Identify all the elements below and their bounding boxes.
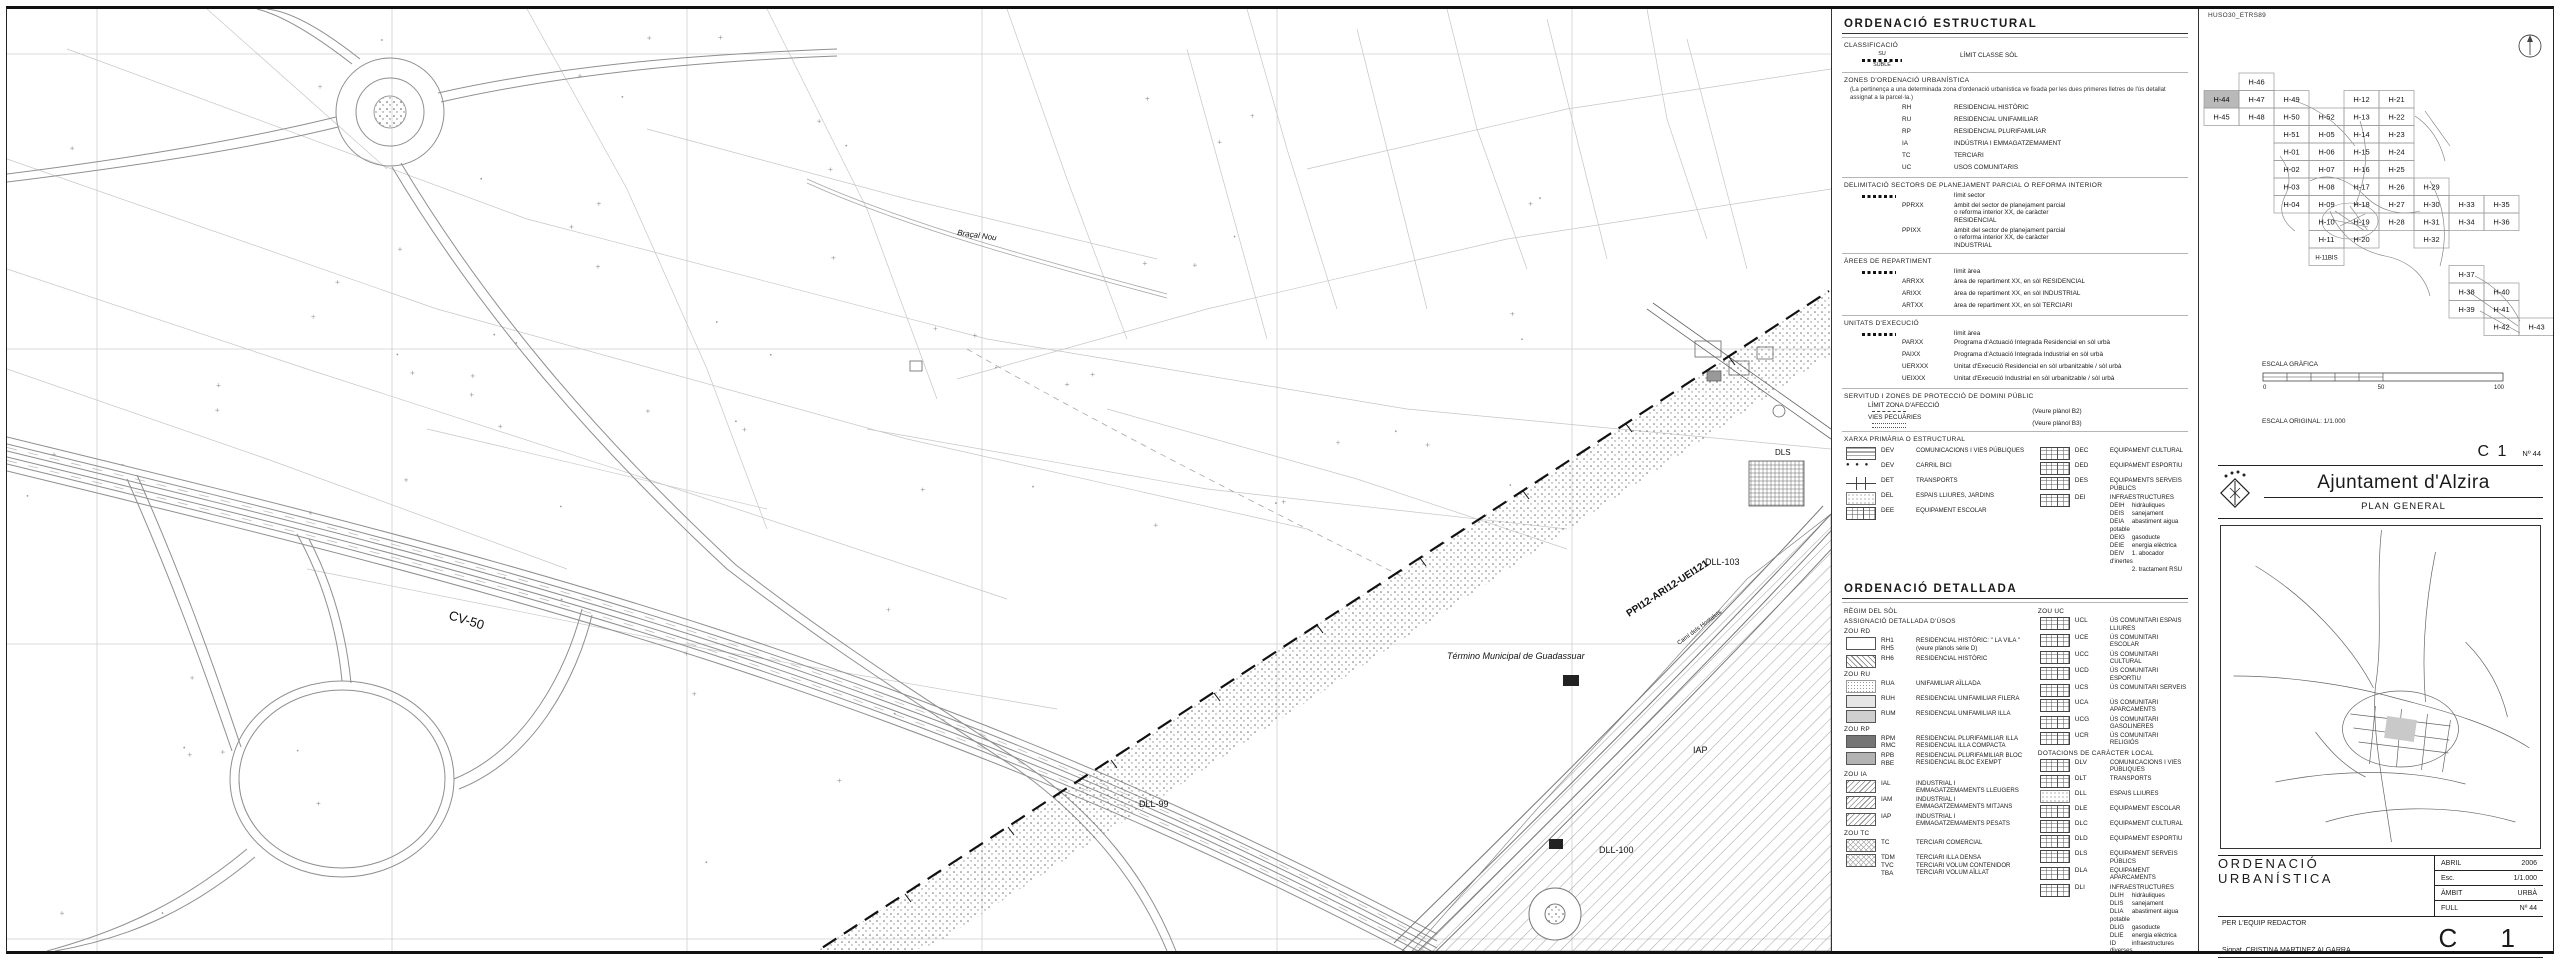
index-cell: H-15 [2344,143,2379,161]
legend-swatch-icon [2040,732,2070,745]
index-cell: H-24 [2379,143,2414,161]
title-block: C 1 Nº 44 Ajuntament d'Alzira PLAN GENER… [2218,441,2543,519]
svg-text:H-25: H-25 [2388,165,2404,174]
legend-content: ORDENACIÓ ESTRUCTURALCLASSIFICACIÓSUSUBL… [1842,15,2188,951]
svg-text:H-20: H-20 [2353,235,2369,244]
legend-item: DEDEQUIPAMENT ESPORTIU [2036,461,2188,475]
svg-text:50: 50 [2378,385,2385,390]
legend-swatch-icon [2040,850,2070,863]
map-label: DLL-100 [1599,845,1634,855]
legend-swatch-icon: ● ● ● [1846,462,1876,475]
svg-text:H-17: H-17 [2353,182,2369,191]
legend-swatch-icon [1846,492,1876,505]
svg-text:H-40: H-40 [2493,287,2509,296]
index-cell: H-12 [2344,91,2379,109]
legend-item: IAMINDUSTRIAL IEMMAGATZEMAMENTS MITJANS [1842,795,2028,811]
legend-item: UERXXXUnitat d'Execució Residencial en s… [1842,362,2188,373]
svg-text:H-32: H-32 [2423,235,2439,244]
signature-label: Signat. CRISTINA MARTINEZ ALGARRA [2222,947,2351,954]
legend-item: LÍMIT ZONA D'AFECCIÓ(Veure plànol B2) [1842,402,2188,412]
svg-text:H-09: H-09 [2318,200,2334,209]
legend-swatch-icon [1862,195,1896,198]
legend-swatch-icon [2040,835,2070,848]
svg-text:H-39: H-39 [2458,305,2474,314]
map-label: DLL-103 [1705,557,1740,567]
index-cell: H-04 [2274,196,2309,214]
map-label: CV-50 [447,608,486,633]
svg-text:H-33: H-33 [2458,200,2474,209]
legend-swatch-icon [1846,447,1876,460]
legend-item: UCRÚS COMUNITARI RELIGIÓS [2036,731,2188,747]
escala-grafica-label: ESCALA GRÀFICA [2262,361,2512,368]
svg-text:H-42: H-42 [2493,322,2509,331]
legend-item: DLEEQUIPAMENT ESCOLAR [2036,804,2188,818]
legend-item: RURESIDENCIAL UNIFAMILIAR [1842,115,2188,126]
legend-swatch-icon [2040,790,2070,803]
svg-text:H-36: H-36 [2493,217,2509,226]
legend-swatch-icon [1862,271,1896,274]
svg-text:H-27: H-27 [2388,200,2404,209]
legend-item: DEEEQUIPAMENT ESCOLAR [1842,506,2028,520]
legend-item: DLCEQUIPAMENT CULTURAL [2036,819,2188,833]
legend-item: DELESPAIS LLIURES, JARDINS [1842,491,2028,505]
legend-item: ARIXXàrea de repartiment XX, en sòl INDU… [1842,289,2188,300]
legend-group: DELIMITACIÓ SECTORS DE PLANEJAMENT PARCI… [1842,177,2188,250]
svg-text:H-23: H-23 [2388,130,2404,139]
location-map [2220,525,2541,849]
legend-item: IAINDÚSTRIA I EMMAGATZEMAMENT [1842,139,2188,150]
footer-empty-cell [2218,886,2435,916]
legend-item: RPBRBERESIDENCIAL PLURIFAMILIAR BLOCRESI… [1842,751,2028,767]
svg-text:H-14: H-14 [2353,130,2369,139]
index-cell: H-28 [2379,213,2414,231]
legend-item: DLDEQUIPAMENT ESPORTIU [2036,834,2188,848]
svg-text:H-18: H-18 [2353,200,2369,209]
svg-text:H-22: H-22 [2388,112,2404,121]
svg-text:H-13: H-13 [2353,112,2369,121]
index-cell: H-26 [2379,178,2414,196]
legend-swatch-icon [1862,333,1896,336]
index-cell: H-01 [2274,143,2309,161]
svg-text:H-30: H-30 [2423,200,2439,209]
legend-item: RPMRMCRESIDENCIAL PLURIFAMILIAR ILLARESI… [1842,734,2028,750]
map-canvas: CV-50Braçal NouTérmino Municipal de Guad… [7,9,1831,951]
index-cell: H-07 [2309,161,2344,179]
sheet-number: Nº 44 [2522,449,2541,458]
legend-item: DEVCOMUNICACIONS I VIES PÚBLIQUES [1842,446,2028,460]
legend-panel: ORDENACIÓ ESTRUCTURALCLASSIFICACIÓSUSUBL… [1831,9,2199,951]
legend-item: DESEQUIPAMENTS SERVEIS PÚBLICS [2036,476,2188,492]
index-cell: H-44 [2204,91,2239,109]
legend-item: UCDÚS COMUNITARI ESPORTIU [2036,666,2188,682]
legend-subheading: RÈGIM DEL SÒL [1844,608,2028,615]
index-cell: H-40 [2484,283,2519,301]
legend-item: UCLÚS COMUNITARI ESPAIS LLIURES [2036,616,2188,632]
svg-text:H-31: H-31 [2423,217,2439,226]
legend-subheading: ZOU IA [1844,771,2028,778]
index-cell: H-03 [2274,178,2309,196]
svg-text:H-44: H-44 [2213,95,2229,104]
legend-swatch-icon [2040,775,2070,788]
index-cell: H-08 [2309,178,2344,196]
legend-swatch-icon [2040,477,2070,490]
legend-swatch-icon [1846,839,1876,852]
svg-text:H-49: H-49 [2283,95,2299,104]
svg-text:H-29: H-29 [2423,182,2439,191]
legend-item: SUSUBLELÍMIT CLASSE SÒL [1842,51,2188,69]
legend-item: DLLESPAIS LLIURES [2036,789,2188,803]
legend-item: ARRXXàrea de repartiment XX, en sòl RESI… [1842,277,2188,288]
legend-group: ÀREES DE REPARTIMENTlímit àreaARRXXàrea … [1842,253,2188,312]
legend-swatch-icon [2040,462,2070,475]
svg-text:H-47: H-47 [2248,95,2264,104]
legend-subheading: ZOU RD [1844,628,2028,635]
legend-swatch-icon [2040,651,2070,664]
index-cell: H-06 [2309,143,2344,161]
legend-section-title: ORDENACIÓ DETALLADA [1842,580,2188,599]
index-cell: H-14 [2344,126,2379,144]
legend-item: UEIXXXUnitat d'Execució Industrial en sò… [1842,374,2188,385]
legend-item: DLIINFRAESTRUCTURESDLIHhidràuliquesDLISs… [2036,883,2188,951]
legend-item: ARTXXàrea de repartiment XX, en sòl TERC… [1842,301,2188,312]
index-cell: H-02 [2274,161,2309,179]
legend-swatch-icon [1846,637,1876,650]
redactor-label: PER L'EQUIP REDACTOR [2222,920,2306,927]
index-cell: H-38 [2449,283,2484,301]
svg-text:H-04: H-04 [2283,200,2299,209]
legend-swatch-icon [1846,813,1876,826]
map-area: CV-50Braçal NouTérmino Municipal de Guad… [7,9,1831,951]
footer-title: ORDENACIÓ URBANÍSTICA [2218,856,2435,886]
legend-swatch-icon [1846,796,1876,809]
legend-swatch-icon [2040,820,2070,833]
legend-swatch-icon [1846,735,1876,748]
legend-item: UCEÚS COMUNITARI ESCOLAR [2036,633,2188,649]
legend-item: RHRESIDENCIAL HISTÒRIC [1842,103,2188,114]
scale-bar: 050100 [2262,368,2512,390]
index-cell: H-05 [2309,126,2344,144]
legend-swatch-icon [2040,634,2070,647]
svg-text:H-11BIS: H-11BIS [2315,255,2337,261]
index-cell: H-49 [2274,91,2309,109]
svg-text:H-10: H-10 [2318,217,2334,226]
svg-text:H-03: H-03 [2283,182,2299,191]
index-cell: H-30 [2414,196,2449,214]
index-cell: H-16 [2344,161,2379,179]
legend-item: DEIINFRAESTRUCTURESDEIHhidràuliquesDEISs… [2036,493,2188,574]
legend-swatch-icon [2040,494,2070,507]
index-cell: H-45 [2204,108,2239,126]
legend-swatch-icon [1846,780,1876,793]
legend-group: CLASSIFICACIÓSUSUBLELÍMIT CLASSE SÒL [1842,37,2188,69]
svg-text:H-28: H-28 [2388,217,2404,226]
legend-item: límit àrea [1842,267,2188,276]
legend-swatch-icon [1846,680,1876,693]
index-map: H-46H-44H-47H-49H-12H-21H-45H-48H-50H-52… [2200,61,2553,353]
svg-text:H-02: H-02 [2283,165,2299,174]
legend-item: PAIXXPrograma d'Actuació Integrada Indus… [1842,350,2188,361]
index-cell: H-52 [2309,108,2344,126]
index-cell: H-39 [2449,301,2484,319]
svg-text:H-05: H-05 [2318,130,2334,139]
legend-item: DLAEQUIPAMENT APARCAMENTS [2036,866,2188,882]
svg-text:H-19: H-19 [2353,217,2369,226]
legend-swatch-icon [1846,854,1876,867]
title-panel: HUSO30_ETRS89 H-46H-44H-47H-49H-12H-21H-… [2200,9,2553,951]
svg-text:H-52: H-52 [2318,112,2334,121]
svg-text:H-48: H-48 [2248,112,2264,121]
legend-swatch-icon: SUSUBLE [1862,52,1902,69]
legend-swatch-icon [2040,716,2070,729]
legend-group: ZONES D'ORDENACIÓ URBANÍSTICA(La pertine… [1842,72,2188,174]
index-cell: H-50 [2274,108,2309,126]
svg-text:100: 100 [2494,385,2505,390]
legend-item: límit sector [1842,191,2188,200]
svg-text:H-41: H-41 [2493,305,2509,314]
map-label: DLL-99 [1139,799,1169,809]
legend-item: DECEQUIPAMENT CULTURAL [2036,446,2188,460]
legend-swatch-icon [2040,667,2070,680]
index-cell: H-13 [2344,108,2379,126]
svg-text:H-45: H-45 [2213,112,2229,121]
legend-swatch-icon [2040,759,2070,772]
legend-item: TDMTVCTBATERCIARI ILLA DENSATERCIARI VOL… [1842,853,2028,877]
svg-text:H-34: H-34 [2458,217,2474,226]
legend-item: PPRXXàmbit del sector de planejament par… [1842,201,2188,225]
legend-item: PPIXXàmbit del sector de planejament par… [1842,226,2188,250]
legend-item: UCGÚS COMUNITARI GASOLINERES [2036,715,2188,731]
legend-item: UCSÚS COMUNITARI SERVEIS [2036,683,2188,697]
legend-swatch-icon [1872,423,1906,428]
se-sector [802,291,1831,951]
index-cell: H-23 [2379,126,2414,144]
legend-swatch-icon [1846,507,1876,520]
footer-block: ORDENACIÓ URBANÍSTICA ABRIL2006 Esc.1/1.… [2218,855,2543,958]
index-cell: H-48 [2239,108,2274,126]
map-label: DLS [1775,448,1791,457]
index-cell: H-34 [2449,213,2484,231]
svg-text:H-16: H-16 [2353,165,2369,174]
index-cell: H-47 [2239,91,2274,109]
legend-subheading: ZOU RU [1844,671,2028,678]
index-cell: H-11BIS [2309,248,2344,266]
coat-of-arms-icon [2218,469,2254,515]
svg-text:H-26: H-26 [2388,182,2404,191]
index-cell: H-51 [2274,126,2309,144]
crs-label: HUSO30_ETRS89 [2208,12,2266,19]
map-label: PPI12-ARI12-UEI121 [1625,558,1712,620]
plan-sheet: CV-50Braçal NouTérmino Municipal de Guad… [6,6,2554,954]
legend-swatch-icon [1846,477,1876,490]
legend-item: RH6RESIDENCIAL HISTÒRIC [1842,654,2028,668]
legend-group: UNITATS D'EXECUCIÓlímit àreaPARXXProgram… [1842,315,2188,386]
index-cell: H-36 [2484,213,2519,231]
legend-item: PARXXPrograma d'Actuació Integrada Resid… [1842,338,2188,349]
svg-text:H-07: H-07 [2318,165,2334,174]
legend-group: SERVITUD I ZONES DE PROTECCIÓ DE DOMINI … [1842,388,2188,428]
index-cell: H-46 [2239,73,2274,91]
index-cell: H-22 [2379,108,2414,126]
legend-swatch-icon [2040,447,2070,460]
sheet-code: C 1 [2478,443,2509,461]
index-cell: H-41 [2484,301,2519,319]
index-cell: H-35 [2484,196,2519,214]
legend-swatch-icon [1846,710,1876,723]
svg-text:H-06: H-06 [2318,147,2334,156]
svg-text:H-08: H-08 [2318,182,2334,191]
legend-item: IAPINDUSTRIAL IEMMAGATZEMAMENTS PESATS [1842,812,2028,828]
legend-subheading: ASSIGNACIÓ DETALLADA D'ÚSOS [1844,618,2028,625]
svg-text:H-11: H-11 [2319,235,2335,244]
index-cell: H-10 [2309,213,2344,231]
svg-text:H-51: H-51 [2283,130,2299,139]
legend-subheading: ZOU RP [1844,726,2028,733]
legend-item: DLVCOMUNICACIONS I VIES PÚBLIQUES [2036,758,2188,774]
legend-section-title: ORDENACIÓ ESTRUCTURAL [1842,15,2188,34]
legend-note: (Veure plànol B3) [2032,420,2081,427]
svg-text:H-01: H-01 [2283,147,2299,156]
svg-text:H-15: H-15 [2353,147,2369,156]
svg-text:0: 0 [2263,385,2267,390]
legend-item: DETTRANSPORTS [1842,476,2028,490]
legend-item: RUHRESIDENCIAL UNIFAMILIAR FILERA [1842,694,2028,708]
legend-item: RH1RH5RESIDENCIAL HISTÒRIC: " LA VILA "(… [1842,636,2028,652]
legend-subheading: DOTACIONS DE CARÀCTER LOCAL [2038,750,2188,757]
scale-block: ESCALA GRÀFICA 050100 ESCALA ORIGINAL: 1… [2262,361,2512,425]
legend-swatch-icon [2040,884,2070,897]
north-arrow-icon [2517,31,2543,61]
legend-item: VIES PECUÀRIES(Veure plànol B3) [1842,414,2188,428]
svg-text:H-43: H-43 [2528,322,2544,331]
legend-item: TCTERCIARI [1842,151,2188,162]
organization-name: Ajuntament d'Alzira [2264,472,2543,494]
index-cell: H-42 [2484,318,2519,336]
svg-text:H-38: H-38 [2458,287,2474,296]
escala-original-label: ESCALA ORIGINAL: 1/1.000 [2262,418,2512,425]
index-cell: H-33 [2449,196,2484,214]
interchange-loop [47,475,592,951]
index-cell: H-27 [2379,196,2414,214]
legend-item: TCTERCIARI COMERCIAL [1842,838,2028,852]
index-cell: H-25 [2379,161,2414,179]
map-label: IAP [1693,745,1708,755]
legend-swatch-icon [1846,752,1876,765]
index-cell: H-29 [2414,178,2449,196]
index-cell: H-43 [2519,318,2553,336]
index-cell: H-11 [2309,231,2344,249]
legend-subheading: ZOU TC [1844,830,2028,837]
legend-item: límit àrea [1842,329,2188,338]
legend-item: RUMRESIDENCIAL UNIFAMILIAR ILLA [1842,709,2028,723]
parcel-lines [7,9,1831,709]
legend-item: RPRESIDENCIAL PLURIFAMILIAR [1842,127,2188,138]
legend-item: UCAÚS COMUNITARI APARCAMENTS [2036,698,2188,714]
plan-name: PLAN GENERAL [2264,497,2543,512]
legend-group: RÈGIM DEL SÒLASSIGNACIÓ DETALLADA D'ÚSOS… [1842,602,2188,951]
legend-item: ● ● ●DEVCARRIL BICI [1842,461,2028,475]
legend-swatch-icon [2040,867,2070,880]
map-label: Término Municipal de Guadassuar [1447,651,1586,661]
legend-swatch-icon [1872,411,1906,412]
svg-text:H-12: H-12 [2353,95,2369,104]
legend-item: DLTTRANSPORTS [2036,774,2188,788]
legend-item: DLSEQUIPAMENT SERVEIS PÚBLICS [2036,849,2188,865]
legend-swatch-icon [2040,805,2070,818]
legend-item: UCCÚS COMUNITARI CULTURAL [2036,650,2188,666]
index-cell: H-21 [2379,91,2414,109]
legend-swatch-icon [1846,695,1876,708]
legend-swatch-icon [2040,617,2070,630]
svg-text:H-35: H-35 [2493,200,2509,209]
svg-text:H-50: H-50 [2283,112,2299,121]
legend-group: XARXA PRIMÀRIA O ESTRUCTURALDEVCOMUNICAC… [1842,431,2188,574]
svg-text:H-37: H-37 [2458,270,2474,279]
index-cell: H-37 [2449,266,2484,284]
svg-text:H-46: H-46 [2248,77,2264,86]
big-sheet-code: C 1 [2439,923,2533,954]
legend-subheading: ZOU UC [2038,608,2188,615]
index-cell: H-18 [2344,196,2379,214]
svg-text:H-21: H-21 [2388,95,2404,104]
legend-item: IALINDUSTRIAL IEMMAGATZEMAMENTS LLEUGERS [1842,779,2028,795]
legend-swatch-icon [1846,655,1876,668]
svg-text:H-24: H-24 [2388,147,2404,156]
legend-swatch-icon [2040,699,2070,712]
legend-swatch-icon [2040,684,2070,697]
legend-item: UCUSOS COMUNITARIS [1842,163,2188,174]
rural-track [967,349,1407,579]
legend-item: RUAUNIFAMILIAR AÏLLADA [1842,679,2028,693]
